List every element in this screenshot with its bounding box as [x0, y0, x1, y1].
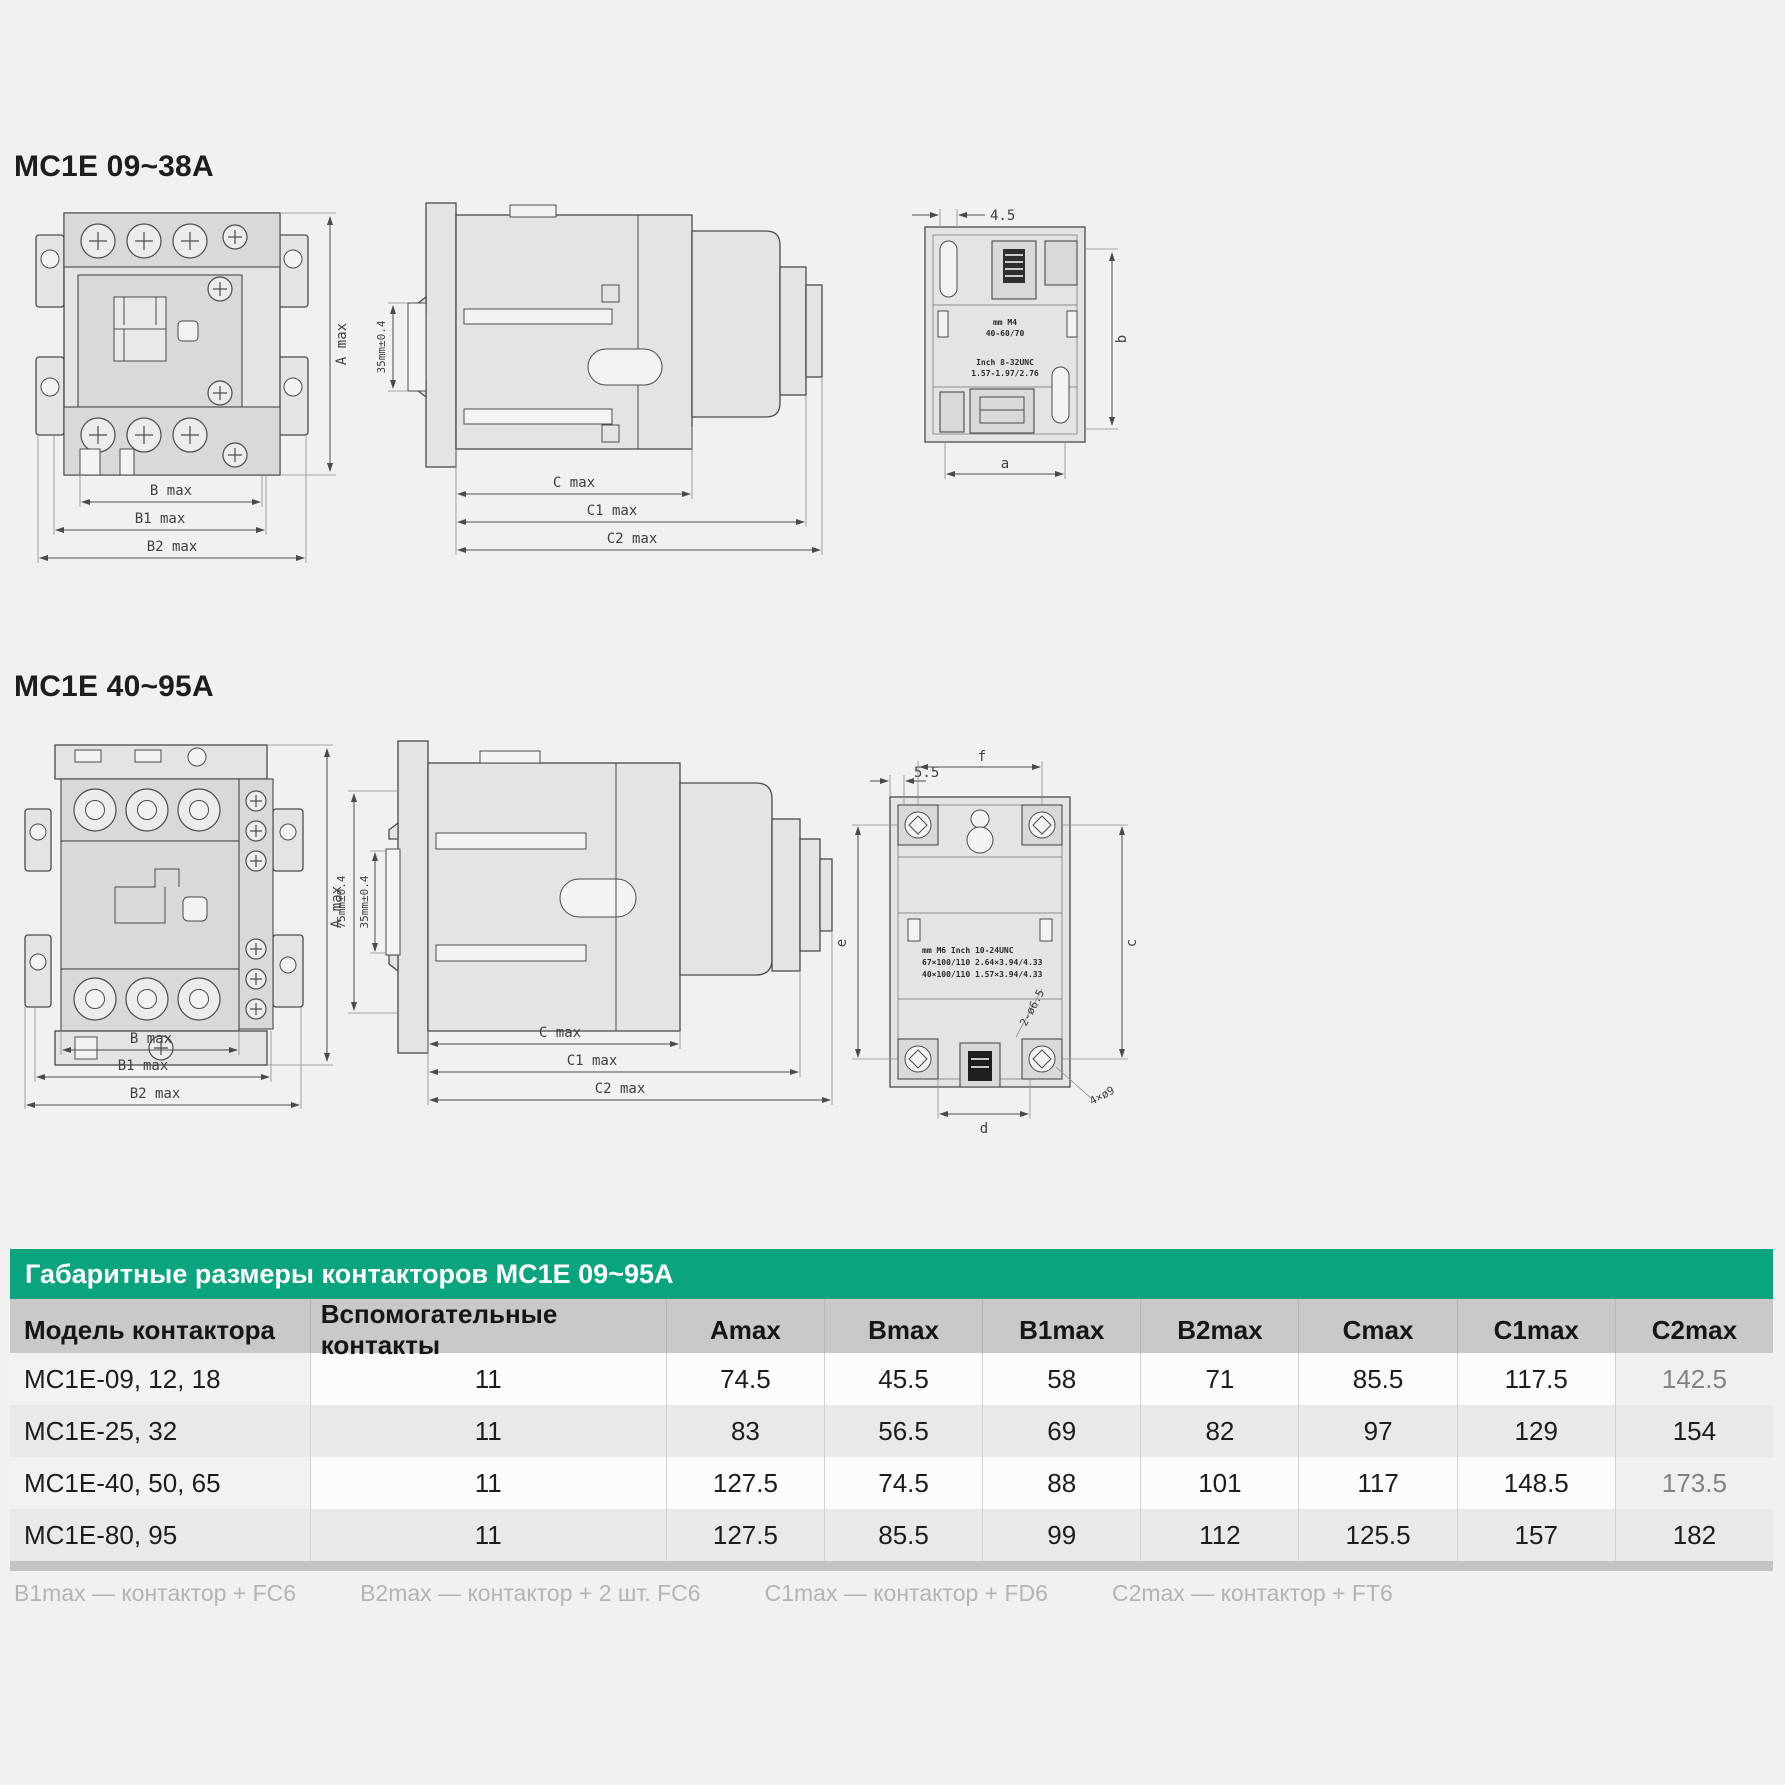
- column-header-c2max: C2max: [1615, 1299, 1773, 1361]
- cell-c1max: 117.5: [1457, 1353, 1615, 1405]
- cell-amax: 127.5: [666, 1509, 824, 1561]
- dim-label-a: a: [1001, 456, 1009, 472]
- column-header-b2max: B2max: [1140, 1299, 1298, 1361]
- cell-c2max: 182: [1615, 1509, 1773, 1561]
- dim-label-4-5: 4.5: [990, 208, 1015, 224]
- contactor-side-body: [408, 203, 822, 467]
- plate-line-1: mm M6 Inch 10-24UNC: [922, 946, 1014, 955]
- cell-amax: 74.5: [666, 1353, 824, 1405]
- cell-cmax: 85.5: [1298, 1353, 1456, 1405]
- contactor-front-body: [55, 745, 273, 1065]
- table-row: MC1E-09, 12, 18 11 74.5 45.5 58 71 85.5 …: [10, 1353, 1773, 1405]
- dim-label-c2-max: C2 max: [595, 1081, 646, 1097]
- cell-aux: 11: [310, 1353, 666, 1405]
- drawing-side-view-small: 35mm±0.4 C max C1 max C2 max: [360, 197, 830, 587]
- dim-label-f: f: [978, 749, 986, 765]
- cell-cmax: 125.5: [1298, 1509, 1456, 1561]
- drawing-rear-view-small: mm M4 40-60/70 Inch 8-32UNC 1.57-1.97/2.…: [800, 197, 1140, 507]
- cell-aux: 11: [310, 1509, 666, 1561]
- dim-label-c1-max: C1 max: [587, 503, 638, 519]
- column-header-cmax: Cmax: [1298, 1299, 1456, 1361]
- cell-b2max: 112: [1140, 1509, 1298, 1561]
- note-b1max: B1max — контактор + FC6: [14, 1580, 296, 1607]
- cell-amax: 127.5: [666, 1457, 824, 1509]
- dim-label-c2-max: C2 max: [607, 531, 658, 547]
- dim-label-b1-max: B1 max: [135, 511, 186, 527]
- plate-line-1: mm M4: [993, 318, 1017, 327]
- page: { "sections": [ { "title": "MC1E 09~38A"…: [0, 0, 1785, 1785]
- cell-model: MC1E-25, 32: [10, 1405, 310, 1457]
- cell-c1max: 148.5: [1457, 1457, 1615, 1509]
- contactor-front-body: [64, 213, 280, 475]
- cell-cmax: 97: [1298, 1405, 1456, 1457]
- contactor-side-body: [386, 741, 832, 1053]
- table-title: Габаритные размеры контакторов MC1E 09~9…: [10, 1249, 1773, 1299]
- cell-amax: 83: [666, 1405, 824, 1457]
- drawing-side-view-large: 75mm±0.4 35mm±0.4 C max C1 max C2 max: [330, 727, 850, 1137]
- plate-line-3: Inch 8-32UNC: [976, 358, 1034, 367]
- cell-b1max: 99: [982, 1509, 1140, 1561]
- cell-c2max: 173.5: [1615, 1457, 1773, 1509]
- cell-b1max: 88: [982, 1457, 1140, 1509]
- dim-label-c-max: C max: [539, 1025, 581, 1041]
- table-header-row: Модель контактора Вспомогательные контак…: [10, 1299, 1773, 1353]
- table-row: MC1E-25, 32 11 83 56.5 69 82 97 129 154: [10, 1405, 1773, 1457]
- dim-label-b2-max: B2 max: [130, 1086, 181, 1102]
- drawing-rear-view-large: mm M6 Inch 10-24UNC 67×100/110 2.64×3.94…: [830, 747, 1170, 1142]
- cell-model: MC1E-09, 12, 18: [10, 1353, 310, 1405]
- dim-label-c: c: [1124, 939, 1140, 947]
- cell-b1max: 58: [982, 1353, 1140, 1405]
- cell-bmax: 56.5: [824, 1405, 982, 1457]
- dimension-rail-35: 35mm±0.4: [375, 303, 408, 391]
- column-header-aux: Вспомогательные контакты: [310, 1299, 666, 1361]
- dim-label-c-max: C max: [553, 475, 595, 491]
- table-row: MC1E-80, 95 11 127.5 85.5 99 112 125.5 1…: [10, 1509, 1773, 1561]
- cell-aux: 11: [310, 1457, 666, 1509]
- dim-label-rail-35: 35mm±0.4: [358, 875, 371, 928]
- cell-b1max: 69: [982, 1405, 1140, 1457]
- cell-aux: 11: [310, 1405, 666, 1457]
- table-row: MC1E-40, 50, 65 11 127.5 74.5 88 101 117…: [10, 1457, 1773, 1509]
- cell-cmax: 117: [1298, 1457, 1456, 1509]
- dim-label-a-max: A max: [334, 323, 350, 365]
- cell-c1max: 157: [1457, 1509, 1615, 1561]
- column-header-amax: Amax: [666, 1299, 824, 1361]
- dim-label-b-max: B max: [150, 483, 192, 499]
- cell-b2max: 71: [1140, 1353, 1298, 1405]
- cell-c2max: 154: [1615, 1405, 1773, 1457]
- dim-label-e: e: [834, 939, 850, 947]
- dim-label-b-max: B max: [130, 1031, 172, 1047]
- dim-label-rail-35: 35mm±0.4: [375, 320, 388, 373]
- column-header-bmax: Bmax: [824, 1299, 982, 1361]
- note-c1max: C1max — контактор + FD6: [765, 1580, 1048, 1607]
- dim-label-d: d: [980, 1121, 988, 1137]
- cell-model: MC1E-80, 95: [10, 1509, 310, 1561]
- note-c2max: C2max — контактор + FT6: [1112, 1580, 1393, 1607]
- column-header-b1max: B1max: [982, 1299, 1140, 1361]
- drawing-front-view-small: A max B max B1 max B2 max: [20, 197, 360, 587]
- column-header-model: Модель контактора: [10, 1299, 310, 1361]
- cell-bmax: 45.5: [824, 1353, 982, 1405]
- dim-label-b: b: [1114, 335, 1130, 343]
- note-b2max: B2max — контактор + 2 шт. FC6: [360, 1580, 701, 1607]
- drawing-front-view-large: A max B max B1 max B2 max: [15, 737, 345, 1132]
- table-bottom-bar: [10, 1561, 1773, 1571]
- dim-label-corner-holes: 4×ø9: [1087, 1084, 1117, 1108]
- cell-model: MC1E-40, 50, 65: [10, 1457, 310, 1509]
- cell-c2max: 142.5: [1615, 1353, 1773, 1405]
- plate-line-2: 40-60/70: [986, 329, 1025, 338]
- dim-label-b1-max: B1 max: [118, 1058, 169, 1074]
- cell-b2max: 101: [1140, 1457, 1298, 1509]
- section-title-mc1e-40-95: MC1E 40~95A: [14, 670, 214, 704]
- dim-label-c1-max: C1 max: [567, 1053, 618, 1069]
- plate-line-2: 67×100/110 2.64×3.94/4.33: [922, 958, 1043, 967]
- plate-line-3: 40×100/110 1.57×3.94/4.33: [922, 970, 1043, 979]
- dim-label-rail-75: 75mm±0.4: [335, 875, 348, 928]
- section-title-mc1e-09-38: MC1E 09~38A: [14, 150, 214, 184]
- cell-c1max: 129: [1457, 1405, 1615, 1457]
- cell-bmax: 85.5: [824, 1509, 982, 1561]
- cell-b2max: 82: [1140, 1405, 1298, 1457]
- dim-label-b2-max: B2 max: [147, 539, 198, 555]
- contactor-rear-body: [890, 797, 1070, 1087]
- plate-line-4: 1.57-1.97/2.76: [971, 369, 1039, 378]
- cell-bmax: 74.5: [824, 1457, 982, 1509]
- dimension-notes: B1max — контактор + FC6 B2max — контакто…: [14, 1580, 1393, 1607]
- column-header-c1max: C1max: [1457, 1299, 1615, 1361]
- dimensions-table: Габаритные размеры контакторов MC1E 09~9…: [10, 1249, 1773, 1571]
